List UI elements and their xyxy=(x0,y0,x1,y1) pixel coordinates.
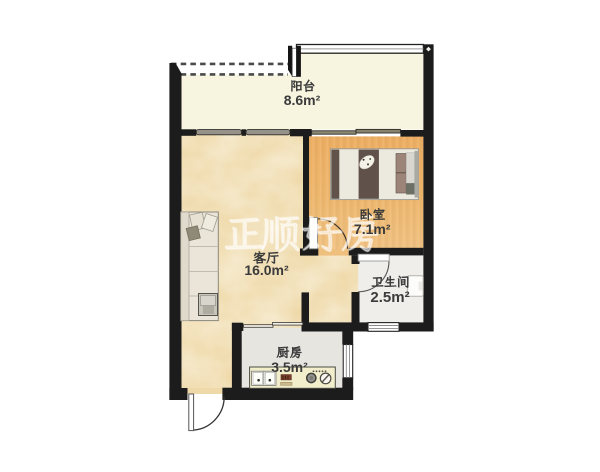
svg-text:8.6m²: 8.6m² xyxy=(284,92,321,108)
svg-text:16.0m²: 16.0m² xyxy=(244,262,289,278)
svg-text:2.5m²: 2.5m² xyxy=(370,289,409,306)
svg-text:3.5m²: 3.5m² xyxy=(271,359,308,375)
svg-text:7.1m²: 7.1m² xyxy=(354,221,391,237)
